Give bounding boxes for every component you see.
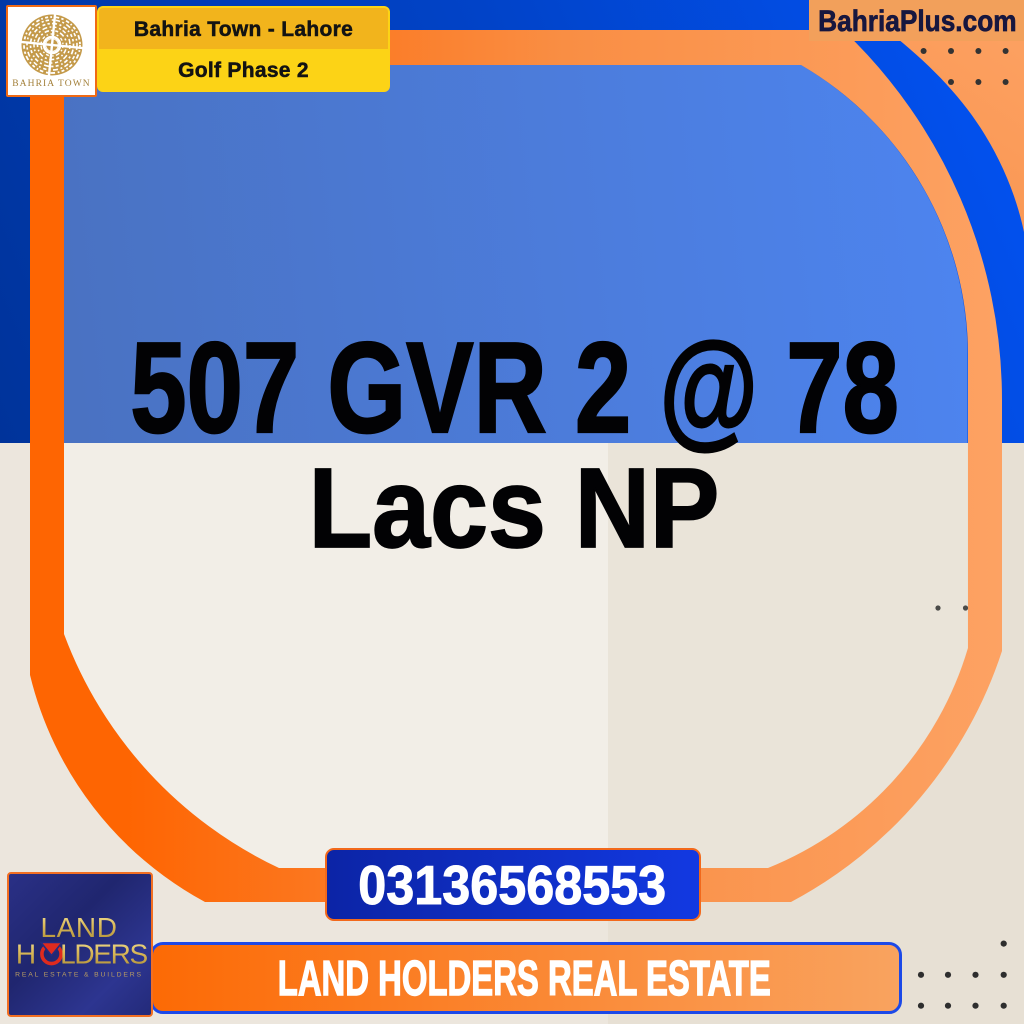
svg-text:REAL ESTATE & BUILDERS: REAL ESTATE & BUILDERS [15,972,143,979]
svg-text:H: H [16,939,36,970]
svg-text:LDERS: LDERS [60,939,147,970]
